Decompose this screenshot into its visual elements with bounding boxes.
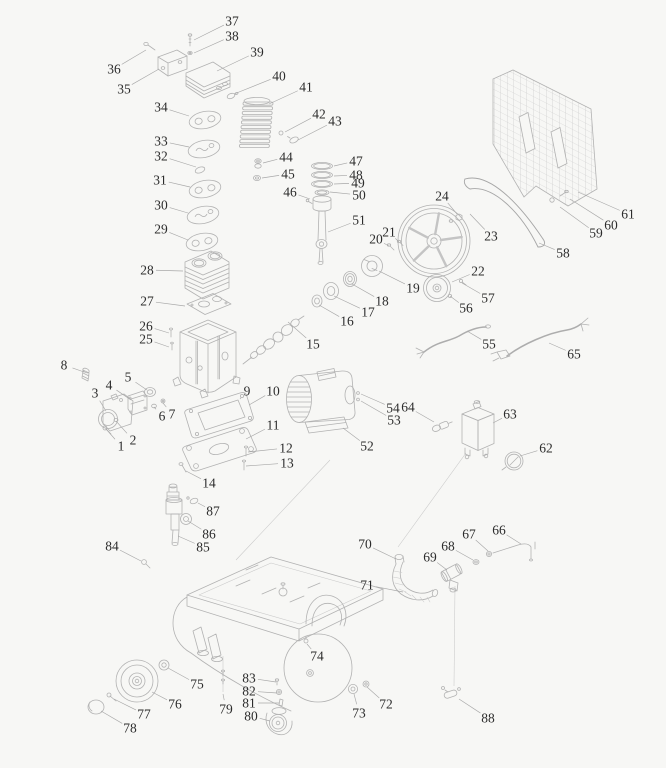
leader-line-11 (246, 429, 265, 439)
air-filter-assembly (144, 34, 192, 76)
leader-line-5 (135, 382, 147, 390)
part-callout-52: 52 (360, 439, 374, 454)
part-callout-40: 40 (272, 69, 286, 84)
leader-line-42 (285, 118, 311, 132)
part-callout-27: 27 (140, 294, 154, 309)
part-callout-34: 34 (154, 100, 168, 115)
assembly-axis-lines (223, 453, 466, 692)
fitting-icon (226, 92, 235, 99)
valve-plate-stack (185, 109, 223, 254)
leader-line-10 (249, 396, 265, 405)
leader-line-65 (549, 343, 566, 350)
leader-line-45 (262, 175, 279, 178)
part-callout-79: 79 (219, 702, 233, 717)
regulator-assembly (142, 463, 199, 568)
part-callout-29: 29 (154, 222, 168, 237)
cylinder-fin-block (239, 97, 299, 147)
part-callout-83: 83 (242, 671, 256, 686)
small-fitting-icon (189, 497, 198, 504)
tank-platform (187, 557, 383, 629)
part-callout-72: 72 (379, 697, 393, 712)
o-ring-icon (279, 131, 283, 135)
part-callout-26: 26 (139, 319, 153, 334)
leader-line-31 (169, 182, 190, 187)
leader-line-77 (114, 699, 136, 710)
part-callout-75: 75 (190, 677, 204, 692)
leader-line-30 (170, 208, 188, 213)
tank-leg (193, 627, 207, 653)
part-callout-22: 22 (471, 264, 485, 279)
part-callout-84: 84 (105, 539, 119, 554)
part-callout-25: 25 (139, 332, 153, 347)
leader-line-61 (578, 192, 620, 210)
part-callout-30: 30 (154, 198, 168, 213)
knob-icon (181, 514, 192, 525)
leader-line-35 (132, 69, 159, 85)
part-callout-15: 15 (306, 337, 320, 352)
part-callout-31: 31 (153, 173, 167, 188)
leader-line-57 (462, 283, 480, 294)
piston-icon (313, 199, 331, 208)
part-callout-56: 56 (459, 301, 473, 316)
bearing-icon (312, 295, 322, 307)
leader-line-75 (168, 668, 189, 680)
part-callout-10: 10 (266, 384, 280, 399)
leader-line-7 (163, 403, 166, 407)
part-callout-82: 82 (242, 684, 256, 699)
part-callout-58: 58 (556, 246, 570, 261)
leader-line-52 (343, 428, 360, 441)
connecting-rod-icon (318, 211, 326, 240)
leader-line-15 (288, 322, 306, 338)
leader-line-79 (223, 694, 224, 700)
leader-line-70 (373, 548, 396, 559)
part-callout-18: 18 (375, 294, 389, 309)
leader-line-55 (467, 331, 481, 339)
part-callout-46: 46 (283, 185, 297, 200)
part-callout-43: 43 (328, 114, 342, 129)
leader-line-69 (437, 562, 447, 570)
crankcase-base-plates (183, 393, 257, 471)
hub-cap-icon (88, 700, 104, 714)
leader-line-38 (194, 40, 224, 53)
leader-line-16 (319, 305, 339, 317)
part-callout-42: 42 (312, 107, 326, 122)
part-callout-66: 66 (492, 523, 506, 538)
part-callout-80: 80 (244, 709, 258, 724)
motor-screw-icon (357, 392, 360, 395)
power-cords (416, 318, 589, 361)
tank-plug-icon (348, 684, 357, 693)
part-callout-59: 59 (589, 226, 603, 241)
leader-line-2 (116, 421, 127, 433)
leader-line-14 (186, 471, 201, 479)
leader-line-50 (330, 192, 350, 194)
leader-line-59 (560, 207, 589, 228)
leader-line-29 (169, 232, 188, 240)
part-callout-1: 1 (118, 439, 125, 454)
leader-line-22 (452, 275, 470, 282)
motor (286, 369, 453, 434)
part-callout-85: 85 (196, 540, 210, 555)
leader-line-56 (450, 296, 459, 303)
guard-bolt-icon (550, 198, 554, 202)
leader-line-51 (328, 223, 351, 232)
part-callout-17: 17 (361, 305, 375, 320)
part-callout-50: 50 (352, 188, 366, 203)
leader-line-60 (570, 199, 603, 220)
part-callout-57: 57 (481, 291, 495, 306)
part-callout-13: 13 (280, 456, 294, 471)
part-callout-28: 28 (140, 263, 154, 278)
parts-diagram-page: 1234567891011121314151617181920212223242… (0, 0, 666, 768)
part-callout-24: 24 (435, 189, 449, 204)
part-callout-16: 16 (340, 314, 354, 329)
leader-line-27 (156, 302, 185, 306)
leader-line-73 (354, 694, 357, 704)
part-callout-77: 77 (137, 707, 151, 722)
part-callout-69: 69 (423, 550, 437, 565)
part-callout-20: 20 (369, 232, 383, 247)
leader-line-68 (456, 550, 473, 560)
leader-line-32 (170, 159, 196, 167)
part-callout-35: 35 (117, 82, 131, 97)
leader-line-64 (416, 411, 434, 422)
leader-line-33 (170, 143, 189, 147)
leader-line-49 (334, 183, 349, 184)
leader-line-88 (459, 699, 480, 713)
part-callout-63: 63 (503, 407, 517, 422)
part-callout-2: 2 (130, 433, 137, 448)
part-callout-21: 21 (382, 225, 396, 240)
part-callout-71: 71 (360, 578, 374, 593)
part-callout-9: 9 (244, 384, 251, 399)
part-callout-4: 4 (106, 378, 113, 393)
leader-line-17 (334, 296, 360, 308)
leader-line-26 (155, 329, 169, 333)
drain-valve-icon (442, 687, 461, 700)
part-callout-62: 62 (539, 441, 553, 456)
part-callout-39: 39 (250, 45, 264, 60)
part-callout-86: 86 (202, 527, 216, 542)
part-callout-32: 32 (154, 149, 168, 164)
cylinder-head-cover (186, 62, 238, 100)
leader-line-84 (120, 550, 141, 561)
part-callout-45: 45 (281, 167, 295, 182)
part-callout-74: 74 (310, 649, 324, 664)
part-callout-36: 36 (107, 62, 121, 77)
part-callout-44: 44 (279, 150, 293, 165)
part-callout-23: 23 (484, 229, 498, 244)
leader-line-40 (234, 79, 271, 94)
leader-line-44 (263, 159, 277, 163)
tube-fitting-icon (431, 419, 453, 433)
leader-line-19 (379, 271, 405, 284)
leader-line-41 (269, 91, 298, 104)
part-callout-19: 19 (406, 281, 420, 296)
leader-line-23 (470, 214, 485, 229)
leader-line-13 (246, 464, 278, 466)
air-filter-body (158, 50, 187, 76)
part-callout-6: 6 (159, 409, 166, 424)
cylinder (185, 251, 231, 315)
part-callout-14: 14 (202, 476, 216, 491)
leader-line-9 (240, 398, 241, 399)
leader-line-25 (155, 342, 169, 347)
reed-valve-icon (194, 166, 205, 175)
leader-line-47 (334, 163, 347, 166)
counterweight-icon (362, 256, 383, 277)
part-callout-87: 87 (206, 504, 220, 519)
part-callout-55: 55 (482, 337, 496, 352)
leader-line-66 (507, 535, 521, 544)
leader-line-78 (101, 711, 122, 723)
part-callout-78: 78 (123, 721, 137, 736)
tank-body (173, 597, 191, 653)
part-callout-65: 65 (567, 347, 581, 362)
part-callout-38: 38 (225, 29, 239, 44)
part-callout-64: 64 (401, 400, 415, 415)
washer-icon (188, 51, 192, 54)
leader-line-46 (298, 195, 310, 199)
part-callout-88: 88 (481, 711, 495, 726)
part-callout-70: 70 (358, 537, 372, 552)
part-callout-76: 76 (168, 697, 182, 712)
flywheel (398, 205, 470, 277)
wheel-washer-icon (159, 660, 169, 670)
part-callout-5: 5 (125, 370, 132, 385)
part-callout-33: 33 (154, 134, 168, 149)
part-callout-54: 54 (386, 401, 400, 416)
leader-line-18 (352, 284, 374, 297)
leader-line-39 (217, 56, 249, 71)
part-callout-7: 7 (169, 407, 176, 422)
belt-guard (493, 70, 597, 206)
part-callout-60: 60 (604, 218, 618, 233)
part-callout-47: 47 (349, 154, 363, 169)
leader-line-85 (178, 536, 195, 543)
filter-bolt-icon (144, 42, 148, 45)
leader-line-62 (520, 451, 537, 456)
leader-line-67 (476, 540, 488, 551)
pressure-gauge (502, 452, 523, 470)
part-callout-41: 41 (299, 80, 313, 95)
leader-line-71 (376, 587, 403, 592)
part-callout-68: 68 (441, 539, 455, 554)
base-gasket-icon (185, 393, 254, 438)
leader-line-34 (170, 110, 189, 116)
part-callout-51: 51 (352, 213, 366, 228)
leader-line-4 (116, 390, 131, 400)
leader-line-8 (72, 368, 84, 372)
leader-line-72 (367, 687, 379, 698)
part-callout-67: 67 (462, 527, 476, 542)
part-callout-37: 37 (225, 14, 239, 29)
unloader-valve-assembly (82, 367, 165, 434)
wrist-pin-icon (255, 159, 261, 163)
leader-line-76 (152, 692, 167, 700)
leader-line-28 (156, 270, 183, 271)
check-valve-icon (440, 563, 464, 583)
exploded-diagram: 1234567891011121314151617181920212223242… (0, 0, 666, 768)
wheel-icon (116, 660, 158, 702)
leader-line-80 (260, 718, 270, 721)
leader-line-86 (188, 521, 201, 529)
leader-line-83 (258, 679, 276, 682)
part-callout-61: 61 (621, 207, 635, 222)
crankcase (169, 320, 240, 398)
leader-line-87 (198, 503, 205, 507)
part-callout-73: 73 (352, 706, 366, 721)
leader-line-48 (334, 175, 347, 176)
part-callout-12: 12 (279, 441, 293, 456)
leader-line-82 (258, 692, 277, 693)
part-callout-3: 3 (92, 386, 99, 401)
seal-ring-icon (145, 388, 156, 397)
leader-line-43 (298, 125, 327, 140)
leader-line-36 (122, 50, 146, 64)
pin-icon (289, 136, 299, 144)
part-callout-8: 8 (61, 358, 68, 373)
leader-line-37 (194, 25, 224, 40)
part-callout-11: 11 (267, 418, 280, 433)
pressure-switch (462, 401, 494, 459)
